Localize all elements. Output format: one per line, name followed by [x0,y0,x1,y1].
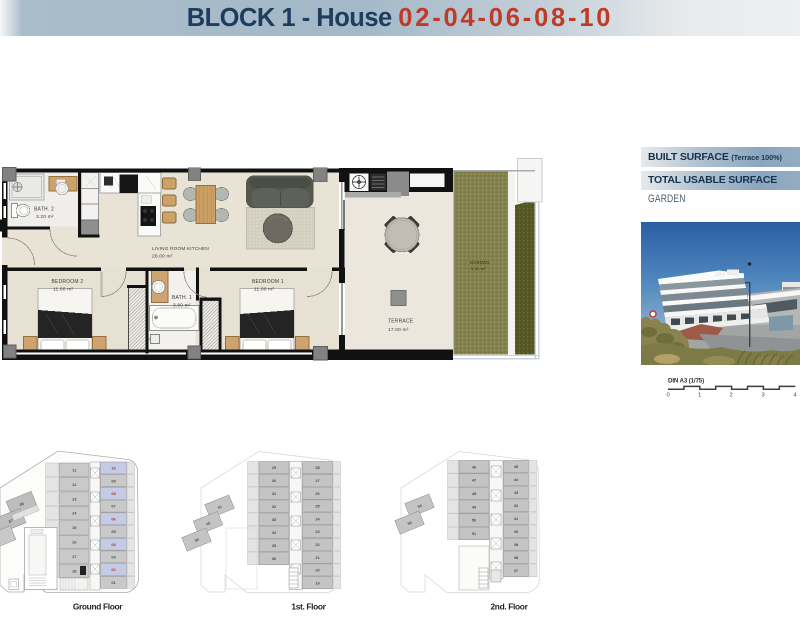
svg-text:20: 20 [315,568,319,573]
svg-text:30: 30 [272,478,276,483]
svg-text:LIVING ROOM KITCHEN: LIVING ROOM KITCHEN [152,246,209,251]
svg-text:37: 37 [514,568,518,573]
svg-text:BATH. 1: BATH. 1 [172,295,192,301]
svg-text:17.00 m²: 17.00 m² [388,327,409,333]
svg-text:BEDROOM 1: BEDROOM 1 [252,279,284,285]
svg-text:DIN A3 (1/75): DIN A3 (1/75) [668,378,704,385]
svg-text:Ground Floor: Ground Floor [73,602,123,612]
svg-text:9.50 m²: 9.50 m² [471,266,486,271]
svg-text:50: 50 [472,518,476,523]
svg-text:11.00 m²: 11.00 m² [254,287,274,293]
svg-text:4: 4 [794,393,798,399]
svg-text:BEDROOM 2: BEDROOM 2 [52,279,84,285]
svg-text:1st. Floor: 1st. Floor [291,602,326,612]
svg-text:GARDEN: GARDEN [470,260,489,265]
svg-text:11.00 m²: 11.00 m² [53,287,73,293]
svg-text:3: 3 [762,393,765,399]
svg-text:3.20 m²: 3.20 m² [36,214,54,220]
svg-text:27: 27 [315,478,319,483]
svg-text:BATH. 2: BATH. 2 [34,207,54,213]
svg-text:0: 0 [667,393,670,399]
svg-text:2nd. Floor: 2nd. Floor [491,602,529,612]
svg-text:47: 47 [472,478,476,483]
svg-text:2: 2 [730,393,733,399]
svg-text:10: 10 [111,466,115,471]
svg-text:TERRACE: TERRACE [388,319,414,325]
svg-text:1: 1 [698,393,701,399]
svg-text:40: 40 [514,529,518,534]
svg-text:26.00 m²: 26.00 m² [152,254,173,260]
svg-text:17: 17 [72,554,76,559]
svg-text:07: 07 [111,504,115,509]
svg-text:3.80 m²: 3.80 m² [173,303,191,309]
